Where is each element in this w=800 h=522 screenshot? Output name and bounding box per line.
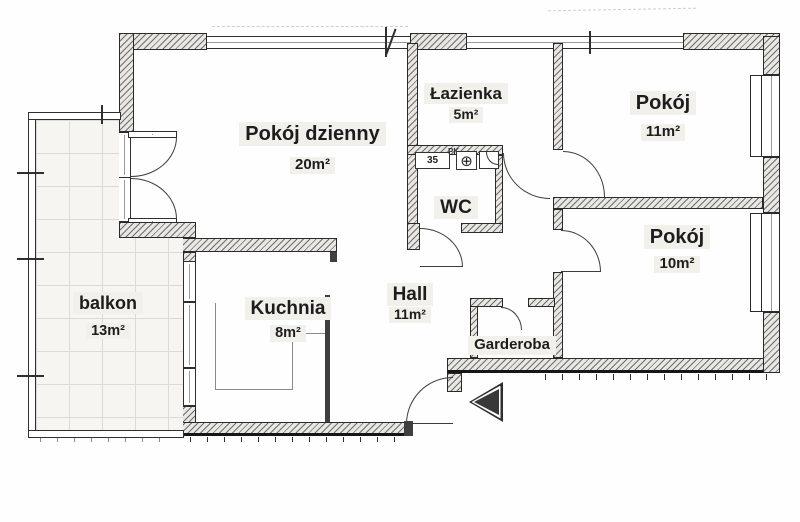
dimension-tick — [360, 437, 361, 442]
balcony-door-swing-upper — [131, 137, 177, 177]
dimension-tick — [57, 438, 58, 442]
dimension-tick — [698, 374, 699, 380]
dimension-tick — [613, 374, 614, 380]
wall-bottom-right-section — [447, 358, 780, 373]
dimension-tick — [326, 437, 327, 442]
balcony-floor — [36, 120, 119, 430]
room-label-room10: Pokój 10m² — [620, 225, 734, 273]
wall-wardrobe-north-left — [470, 298, 503, 307]
room-area: 8m² — [270, 325, 306, 341]
room-name: Pokój — [630, 91, 696, 115]
kitchen-counter-line — [215, 389, 293, 390]
dimension-tick — [589, 31, 591, 54]
entrance-door-swing — [406, 377, 453, 424]
kitchen-counter-line — [215, 303, 216, 390]
dimension-tick — [732, 374, 733, 380]
pencil-artifact — [212, 26, 408, 28]
room-label-bathroom: Łazienka 5m² — [403, 83, 529, 124]
wall-east-lower — [763, 312, 780, 373]
wall-bottom-left-section — [177, 422, 412, 436]
bathroom-door-swing — [503, 153, 550, 199]
wall-living-sw-corner — [119, 222, 196, 238]
dimension-tick — [343, 437, 344, 442]
room-label-room11: Pokój 11m² — [606, 91, 720, 141]
pencil-artifact — [548, 8, 696, 13]
balcony-railing-bottom — [28, 430, 184, 438]
dimension-tick — [394, 437, 395, 442]
room11-door-swing — [563, 151, 605, 197]
dimension-tick — [159, 438, 160, 442]
dimension-tick — [241, 437, 242, 442]
wall-room11-room10-divider — [553, 197, 763, 209]
wardrobe-door-swing — [501, 307, 522, 330]
balcony-railing-left — [28, 112, 36, 438]
window-top-living — [207, 36, 410, 49]
dimension-tick — [647, 374, 648, 380]
floor-plan: 35 PK ⊕ Pokój dzienny 20m² Łazienka 5m² — [0, 0, 800, 522]
room-name: Garderoba — [468, 336, 556, 355]
dimension-tick — [17, 172, 44, 174]
room-name: Hall — [387, 283, 434, 306]
dimension-tick — [125, 438, 126, 442]
room-label-hall: Hall 11m² — [371, 283, 449, 324]
balcony-railing-top — [28, 112, 121, 120]
window-top-room11 — [467, 36, 683, 49]
dimension-tick — [749, 374, 750, 380]
room-area: 5m² — [449, 107, 484, 123]
room-name: balkon — [73, 292, 143, 314]
dimension-tick — [630, 374, 631, 380]
dimension-tick — [91, 438, 92, 442]
room-name: Pokój dzienny — [239, 122, 385, 146]
dimension-tick — [190, 437, 191, 442]
dimension-tick — [377, 437, 378, 442]
dimension-tick — [74, 438, 75, 442]
room-label-wc: WC — [424, 196, 488, 219]
room-area: 13m² — [86, 323, 130, 339]
wall-wc-south-east — [461, 223, 503, 233]
window-kitchen-2 — [183, 302, 196, 368]
wall-hall-east-stub — [553, 209, 563, 230]
dimension-tick — [108, 438, 109, 442]
wall-wardrobe-north-right — [528, 298, 555, 307]
room-name: Pokój — [644, 225, 710, 249]
room-label-balcony: balkon 13m² — [56, 292, 160, 340]
balcony-door-panel-upper — [118, 132, 131, 178]
room-name: Łazienka — [424, 83, 508, 104]
dimension-tick — [292, 437, 293, 442]
dimension-tick — [142, 438, 143, 442]
wall-stub-kitchen-opening — [330, 252, 337, 262]
room-area: 11m² — [641, 124, 685, 141]
room-area: 20m² — [290, 157, 335, 174]
dimension-tick — [101, 105, 103, 124]
dimension-tick — [275, 437, 276, 442]
room-name: WC — [434, 196, 478, 219]
dimension-tick — [258, 437, 259, 442]
dimension-tick — [766, 374, 767, 380]
sink-icon — [479, 151, 499, 169]
wall-west-living — [119, 33, 134, 132]
dimension-tick — [562, 374, 563, 380]
window-room10 — [750, 213, 780, 312]
wall-bathroom-west — [407, 43, 418, 230]
wall-east-upper — [763, 36, 780, 75]
dimension-tick — [715, 374, 716, 380]
cabinet-fixture: 35 — [415, 152, 450, 169]
wall-top-bathroom — [410, 33, 467, 50]
room-area: 11m² — [389, 307, 431, 323]
room-name: Kuchnia — [245, 297, 332, 320]
dimension-tick — [579, 374, 580, 380]
dimension-tick — [224, 437, 225, 442]
room-label-wardrobe: Garderoba — [458, 336, 566, 355]
dimension-tick — [40, 438, 41, 442]
dimension-tick — [17, 375, 44, 377]
window-kitchen-1 — [183, 261, 196, 302]
dimension-tick — [545, 374, 546, 380]
cabinet-label: 35 — [427, 155, 438, 166]
wall-east-middle — [763, 157, 780, 213]
dimension-tick — [207, 437, 208, 442]
room-label-kitchen: Kuchnia 8m² — [226, 297, 350, 342]
room-area: 10m² — [654, 256, 699, 273]
wall-bathroom-east — [553, 43, 563, 150]
balcony-door-swing-lower — [131, 178, 177, 219]
wall-wc-south-west — [407, 223, 420, 250]
balcony-door-panel-lower — [118, 177, 131, 222]
dimension-tick — [681, 374, 682, 380]
dimension-tick — [596, 374, 597, 380]
washing-machine-icon: ⊕ — [456, 151, 477, 170]
room10-door-swing — [561, 230, 601, 272]
window-room11 — [750, 75, 780, 157]
room-label-living: Pokój dzienny 20m² — [225, 122, 400, 174]
dimension-tick — [17, 258, 44, 260]
dimension-tick — [664, 374, 665, 380]
dimension-tick — [309, 437, 310, 442]
window-kitchen-3 — [183, 368, 196, 406]
wc-door-swing — [420, 228, 463, 267]
